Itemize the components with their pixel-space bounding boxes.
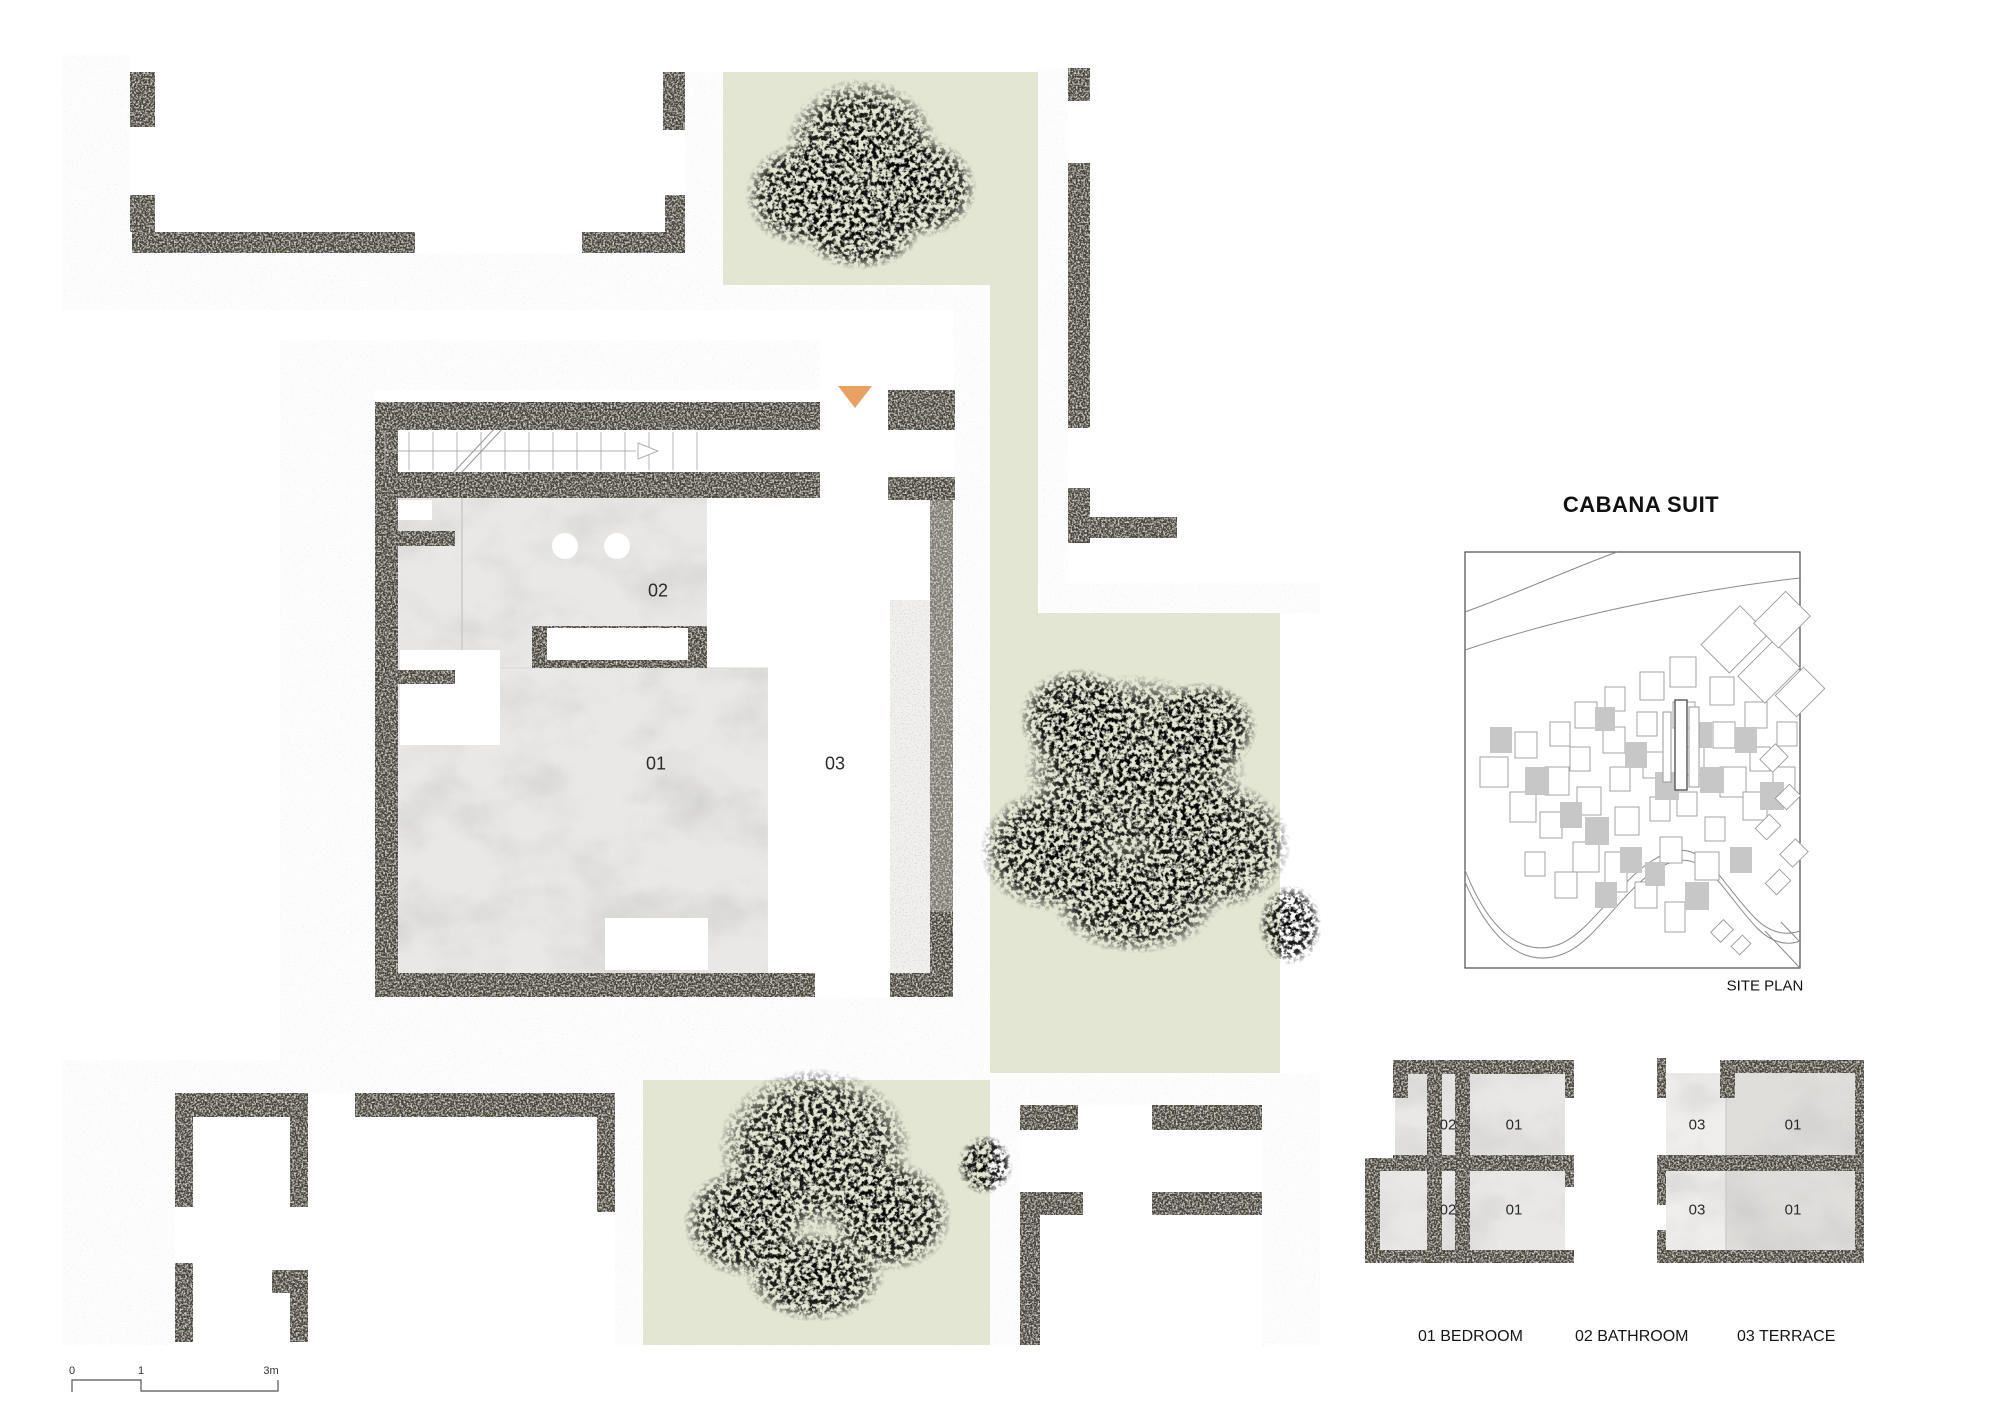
legend-item-terrace: 03 TERRACE — [1737, 1328, 1835, 1346]
closet-shelf — [398, 500, 432, 520]
unit-diagram-right — [1657, 1058, 1864, 1263]
scale-tick-0: 0 — [69, 1365, 75, 1377]
neighbor-building-bottom-left — [175, 1093, 615, 1345]
unit-diagram-left — [1365, 1060, 1574, 1263]
scale-tick-3m: 3m — [263, 1365, 278, 1377]
neighbor-building-east — [1068, 40, 1330, 583]
legend-item-bathroom: 02 BATHROOM — [1575, 1328, 1689, 1346]
neighbor-building-top-middle — [582, 40, 685, 253]
unit-left-room-label: 02 — [1440, 1117, 1457, 1134]
site-plan-map — [1465, 552, 1825, 968]
scale-bar — [72, 1380, 278, 1392]
sink-right — [604, 533, 630, 559]
gravel-strip — [890, 600, 930, 973]
room-label-bathroom: 02 — [648, 581, 668, 602]
scale-tick-1: 1 — [138, 1365, 144, 1377]
vanity-counter — [547, 628, 688, 660]
east-garden-wall — [930, 500, 953, 912]
site-plan-caption: SITE PLAN — [1727, 978, 1804, 995]
neighbor-building-bottom-right — [1020, 1105, 1262, 1345]
unit-right-room-label: 01 — [1785, 1117, 1802, 1134]
sink-left — [552, 533, 578, 559]
neighbor-building-top-left — [130, 40, 415, 253]
room-label-bedroom: 01 — [646, 754, 666, 775]
unit-right-room-label: 03 — [1689, 1202, 1706, 1219]
page-title: CABANA SUIT — [1563, 492, 1719, 518]
unit-left-room-label: 01 — [1506, 1117, 1523, 1134]
rug — [605, 918, 708, 970]
legend-item-bedroom: 01 BEDROOM — [1418, 1328, 1523, 1346]
architectural-drawing-sheet: CABANA SUIT SITE PLAN 02 01 03 02 01 02 … — [0, 0, 2000, 1413]
unit-left-room-label: 01 — [1506, 1202, 1523, 1219]
shrub-east-edge — [1258, 885, 1322, 965]
bed — [400, 650, 500, 745]
room-label-terrace: 03 — [825, 754, 845, 775]
site-cabana-highlight — [1663, 700, 1699, 790]
main-floor-plan — [375, 386, 955, 997]
unit-right-room-label: 03 — [1689, 1117, 1706, 1134]
unit-right-room-label: 01 — [1785, 1202, 1802, 1219]
unit-left-room-label: 02 — [1440, 1202, 1457, 1219]
